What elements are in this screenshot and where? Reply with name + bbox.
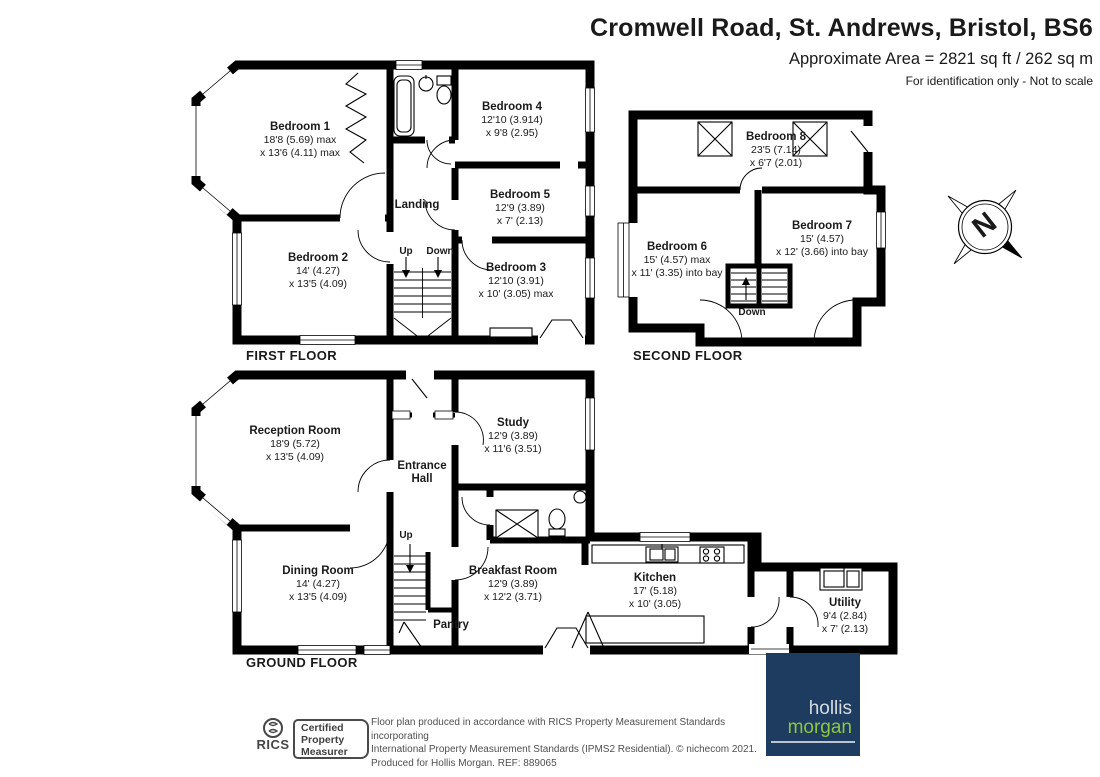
- room-dim: x 11' (3.35) into bay: [631, 267, 722, 280]
- room-name: Utility: [822, 597, 868, 610]
- room-dim: x 13'5 (4.09): [288, 278, 348, 291]
- room-label-bedroom7: Bedroom 7 15' (4.57) x 12' (3.66) into b…: [776, 220, 868, 259]
- logo-divider: [771, 741, 855, 743]
- room-dim: 9'4 (2.84): [822, 610, 868, 623]
- stairs-down-label: Down: [738, 306, 765, 319]
- room-label-bedroom3: Bedroom 3 12'10 (3.91) x 10' (3.05) max: [479, 262, 554, 301]
- room-name: Study: [484, 417, 541, 430]
- approximate-area: Approximate Area = 2821 sq ft / 262 sq m: [789, 50, 1093, 69]
- utility-fixtures: [820, 566, 862, 590]
- room-dim: x 7' (2.13): [490, 215, 550, 228]
- room-label-breakfast: Breakfast Room 12'9 (3.89) x 12'2 (3.71): [469, 565, 557, 604]
- room-dim: 23'5 (7.14): [746, 144, 806, 157]
- room-name: Reception Room: [249, 425, 340, 438]
- ground-floor-plan: [196, 371, 893, 655]
- room-dim: 15' (4.57) max: [631, 254, 722, 267]
- room-name: Bedroom 7: [776, 220, 868, 233]
- rics-wordmark: RICS: [254, 737, 292, 752]
- room-label-bedroom6: Bedroom 6 15' (4.57) max x 11' (3.35) in…: [631, 241, 722, 280]
- room-dim: x 10' (3.05) max: [479, 288, 554, 301]
- room-dim: x 12'2 (3.71): [469, 591, 557, 604]
- ground-floor-label: GROUND FLOOR: [246, 655, 358, 670]
- room-name: Dining Room: [282, 565, 354, 578]
- room-label-study: Study 12'9 (3.89) x 11'6 (3.51): [484, 417, 541, 456]
- room-name: Bedroom 8: [746, 131, 806, 144]
- room-dim: x 12' (3.66) into bay: [776, 246, 868, 259]
- footer-line3: Produced for Hollis Morgan. REF: 889065: [371, 757, 771, 771]
- room-name: Bedroom 6: [631, 241, 722, 254]
- room-dim: 12'10 (3.914): [481, 114, 543, 127]
- room-label-utility: Utility 9'4 (2.84) x 7' (2.13): [822, 597, 868, 636]
- page-title: Cromwell Road, St. Andrews, Bristol, BS6: [590, 14, 1093, 43]
- room-label-bedroom1: Bedroom 1 18'8 (5.69) max x 13'6 (4.11) …: [260, 121, 340, 160]
- stairs-up-label: Up: [399, 245, 412, 258]
- room-dim: 14' (4.27): [288, 265, 348, 278]
- room-name: Bedroom 1: [260, 121, 340, 134]
- second-floor-label: SECOND FLOOR: [633, 348, 743, 363]
- room-label-pantry: Pantry: [433, 619, 469, 632]
- room-name: Bedroom 5: [490, 189, 550, 202]
- room-dim: 12'9 (3.89): [469, 578, 557, 591]
- rics-logo: RICS: [254, 716, 292, 752]
- first-floor-label: FIRST FLOOR: [246, 348, 337, 363]
- room-dim: x 13'5 (4.09): [282, 591, 354, 604]
- room-label-bedroom5: Bedroom 5 12'9 (3.89) x 7' (2.13): [490, 189, 550, 228]
- room-name: Kitchen: [629, 572, 681, 585]
- morgan-wordmark: morgan: [788, 718, 852, 737]
- room-dim: x 13'5 (4.09): [249, 451, 340, 464]
- room-label-bedroom4: Bedroom 4 12'10 (3.914) x 9'8 (2.95): [481, 101, 543, 140]
- hollis-morgan-logo: hollis morgan: [766, 653, 860, 756]
- room-dim: x 10' (3.05): [629, 598, 681, 611]
- room-label-bedroom2: Bedroom 2 14' (4.27) x 13'5 (4.09): [288, 252, 348, 291]
- room-dim: 12'10 (3.91): [479, 275, 554, 288]
- certified-property-measurer-badge: Certified Property Measurer: [293, 719, 369, 759]
- room-dim: x 9'8 (2.95): [481, 127, 543, 140]
- disclaimer: For identification only - Not to scale: [906, 74, 1093, 88]
- room-dim: 14' (4.27): [282, 578, 354, 591]
- room-dim: 12'9 (3.89): [490, 202, 550, 215]
- footer-line1: Floor plan produced in accordance with R…: [371, 716, 771, 743]
- hollis-wordmark: hollis: [788, 699, 852, 718]
- room-dim: x 11'6 (3.51): [484, 443, 541, 456]
- room-name: Bedroom 3: [479, 262, 554, 275]
- room-dim: 12'9 (3.89): [484, 430, 541, 443]
- room-dim: x 7' (2.13): [822, 623, 868, 636]
- footer-line2: International Property Measurement Stand…: [371, 743, 771, 757]
- room-label-entrance-hall: Entrance Hall: [397, 460, 446, 486]
- room-label-bedroom8: Bedroom 8 23'5 (7.14) x 6'7 (2.01): [746, 131, 806, 170]
- room-dim: 18'9 (5.72): [249, 438, 340, 451]
- floor-plan-canvas: [0, 0, 1100, 777]
- stairs-up-label: Up: [399, 529, 412, 542]
- room-dim: 17' (5.18): [629, 585, 681, 598]
- room-label-dining: Dining Room 14' (4.27) x 13'5 (4.09): [282, 565, 354, 604]
- room-dim: 18'8 (5.69) max: [260, 134, 340, 147]
- room-label-kitchen: Kitchen 17' (5.18) x 10' (3.05): [629, 572, 681, 611]
- room-name: Bedroom 4: [481, 101, 543, 114]
- second-floor-stairs: [728, 266, 790, 306]
- floorplan-page: Cromwell Road, St. Andrews, Bristol, BS6…: [0, 0, 1100, 777]
- room-dim: 15' (4.57): [776, 233, 868, 246]
- room-label-landing: Landing: [395, 199, 440, 212]
- footer-disclaimer-text: Floor plan produced in accordance with R…: [371, 716, 771, 770]
- room-dim: x 6'7 (2.01): [746, 157, 806, 170]
- room-label-reception: Reception Room 18'9 (5.72) x 13'5 (4.09): [249, 425, 340, 464]
- room-dim: x 13'6 (4.11) max: [260, 147, 340, 160]
- room-name: Breakfast Room: [469, 565, 557, 578]
- stairs-down-label: Down: [426, 245, 453, 258]
- room-name: Bedroom 2: [288, 252, 348, 265]
